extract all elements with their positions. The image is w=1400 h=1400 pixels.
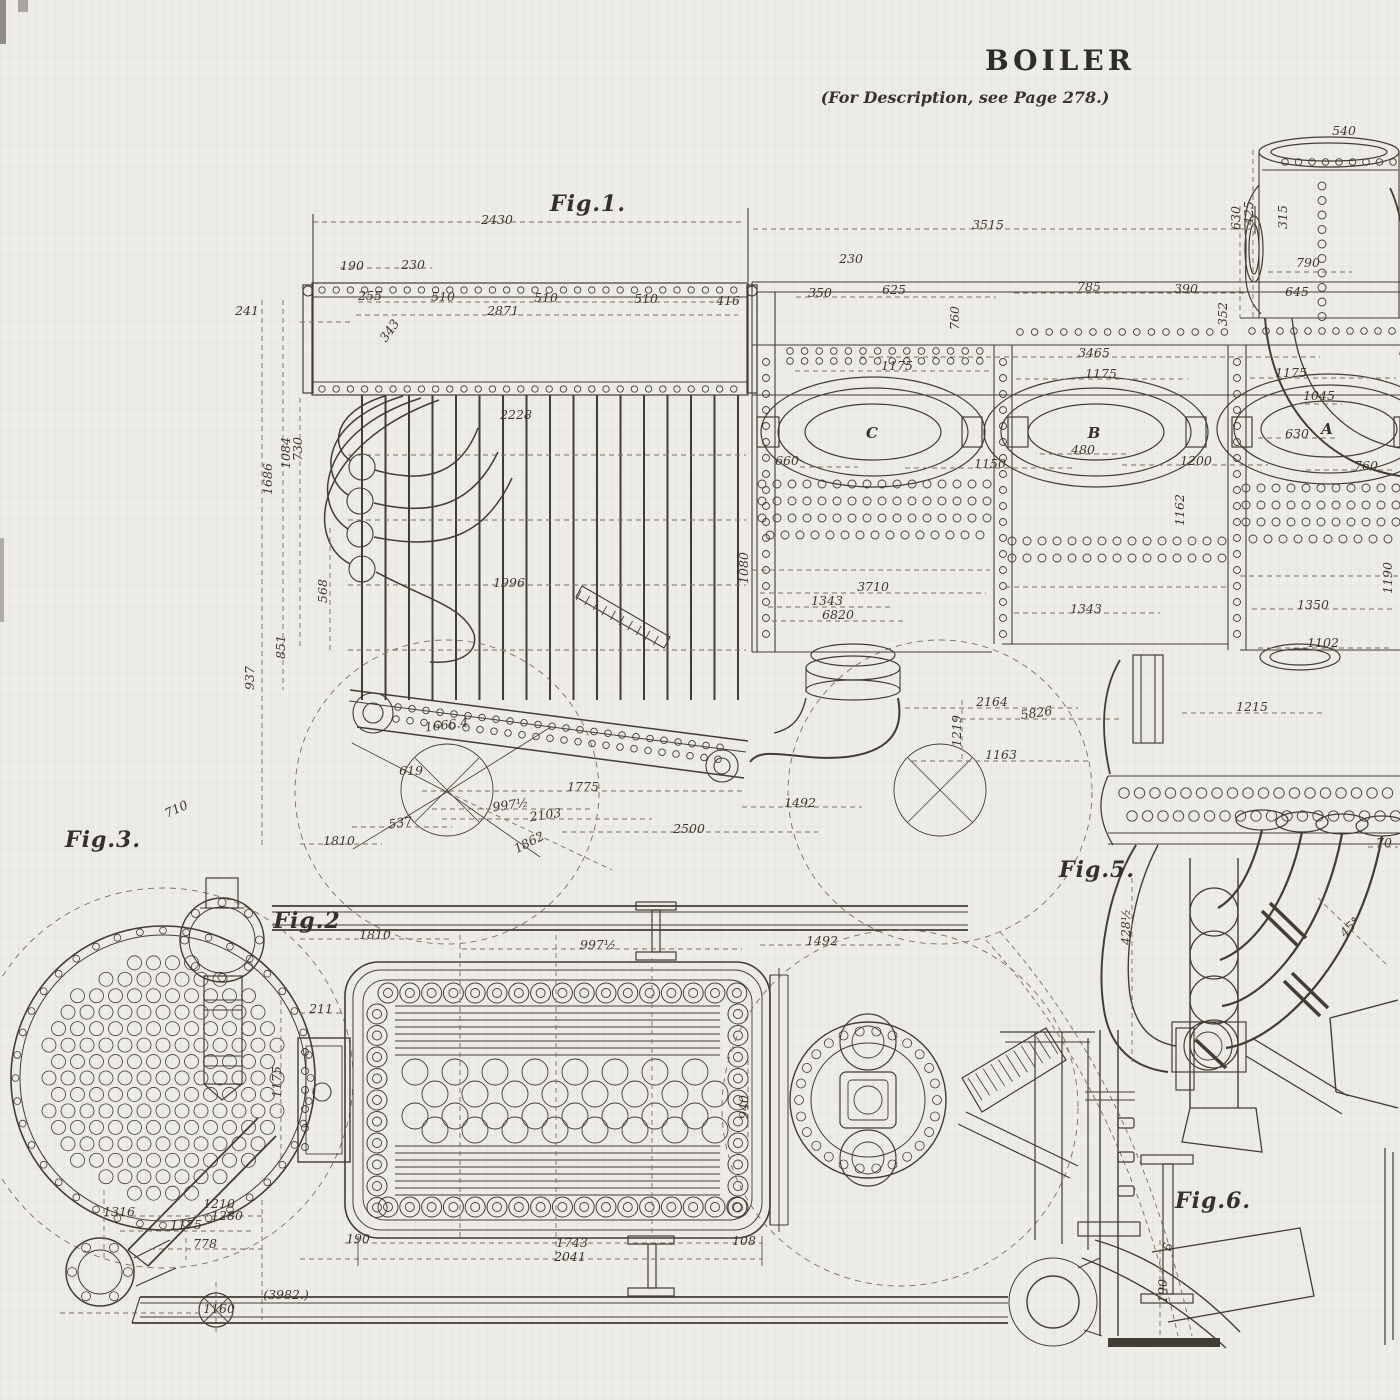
dimension-label: 3465 bbox=[1078, 345, 1110, 360]
dimension-label: 1175 bbox=[881, 358, 913, 373]
dimension-label: 1200 bbox=[1180, 453, 1212, 468]
dimension-label: 480 bbox=[1070, 442, 1095, 457]
dimension-label: 937 bbox=[242, 666, 257, 690]
dimension-label: 625 bbox=[882, 282, 906, 297]
dimension-label: 1350 bbox=[1297, 597, 1329, 612]
dimension-label: 2041 bbox=[553, 1249, 586, 1264]
dimension-label: 416 bbox=[715, 293, 740, 308]
dimension-label: 2103 bbox=[528, 805, 563, 824]
dimension-label: 343 bbox=[376, 316, 402, 344]
dimension-label: 660 bbox=[775, 453, 799, 468]
part-label: C bbox=[866, 424, 878, 442]
fig5-linework bbox=[1102, 810, 1400, 1152]
dimension-label: 1743 bbox=[556, 1235, 588, 1250]
dimension-label: 1102 bbox=[1307, 635, 1339, 650]
dimension-label: 510 bbox=[431, 289, 455, 304]
dimension-label: 255 bbox=[357, 288, 382, 303]
fig2-linework bbox=[132, 902, 1220, 1347]
dimension-label: 2500 bbox=[672, 821, 705, 836]
dimension-label: 190 bbox=[346, 1231, 370, 1246]
figure-label: Fig.1. bbox=[549, 191, 626, 217]
dimension-label: 211 bbox=[308, 1001, 333, 1016]
dimension-label: 778 bbox=[193, 1236, 217, 1251]
dimension-label: 1810 bbox=[359, 927, 391, 942]
dimension-label: 390 bbox=[1174, 281, 1198, 296]
dimension-label: 510 bbox=[534, 290, 558, 305]
dimension-label: 645 bbox=[1285, 284, 1309, 299]
dimension-label: 851 bbox=[273, 635, 288, 659]
drawing-sheet: BOILER (For Description, see Page 278.) … bbox=[0, 0, 1400, 1400]
dimension-label: 568 bbox=[315, 579, 330, 603]
dimension-label: 540 bbox=[1332, 123, 1356, 138]
dimension-label: 619 bbox=[399, 763, 423, 778]
dimension-label: 1175 bbox=[1085, 366, 1117, 381]
dimension-label: 1175 bbox=[269, 1066, 284, 1098]
dimension-label: 1492 bbox=[784, 795, 816, 810]
dimension-label: 537 bbox=[388, 813, 414, 831]
fig6-linework bbox=[958, 932, 1393, 1348]
dimension-label: 1343 bbox=[811, 593, 843, 608]
dimension-label: 997½ bbox=[580, 937, 616, 952]
figure-label: Fig.6. bbox=[1174, 1188, 1251, 1214]
dimension-label: 1686 bbox=[260, 463, 275, 495]
dimension-label: 190 bbox=[340, 258, 364, 273]
dimension-label: 425 bbox=[1241, 201, 1256, 226]
dimension-label: 350 bbox=[808, 285, 832, 300]
dimension-label: 510 bbox=[634, 291, 658, 306]
dimension-label: 730 bbox=[290, 437, 305, 461]
dimension-label: 45° bbox=[1336, 914, 1363, 941]
dimension-labels: 2430351523054019023025551051051041628713… bbox=[103, 123, 1395, 1316]
dimension-label: 1162 bbox=[1172, 494, 1187, 526]
dimension-label: 760 bbox=[947, 306, 962, 330]
figure-label: Fig.5. bbox=[1058, 857, 1135, 883]
fig3-linework bbox=[0, 878, 353, 1334]
dimension-label: 1163 bbox=[985, 747, 1017, 762]
dimension-label: 230 bbox=[838, 251, 863, 266]
dimension-label: 2430 bbox=[480, 212, 513, 227]
dimension-label: 1492 bbox=[806, 933, 838, 948]
paper-artifacts bbox=[0, 0, 28, 622]
dimension-label: 1775 bbox=[567, 779, 599, 794]
dimension-label: 3710 bbox=[857, 579, 889, 594]
dimension-label: 2871 bbox=[486, 303, 519, 318]
boiler-technical-drawing: 2430351523054019023025551051051041628713… bbox=[0, 0, 1400, 1400]
dimension-label: 1175 bbox=[1275, 365, 1307, 380]
dimension-label: 1160 bbox=[203, 1301, 235, 1316]
dimension-label: 1316 bbox=[103, 1204, 135, 1219]
dimension-label: 315 bbox=[1275, 205, 1290, 229]
dimension-label: 241 bbox=[234, 303, 259, 318]
dimension-label: 1080 bbox=[736, 552, 751, 584]
dimension-label: 108 bbox=[732, 1233, 756, 1248]
part-label: A bbox=[1319, 420, 1333, 438]
figure-label: Fig.2 bbox=[272, 908, 340, 934]
dimension-label: 428½ bbox=[1118, 909, 1133, 946]
dimension-label: 1862 bbox=[511, 828, 546, 856]
dimension-label: 710 bbox=[162, 797, 190, 821]
dimension-label: (3982.) bbox=[263, 1287, 309, 1302]
dimension-label: 940 bbox=[736, 1095, 751, 1119]
dimension-label: 1810 bbox=[323, 833, 355, 848]
dimension-label: 5826 bbox=[1020, 703, 1054, 722]
dimension-label: 1190 bbox=[1380, 562, 1395, 594]
dimension-label: 2164 bbox=[975, 694, 1008, 709]
fig1-linework bbox=[262, 137, 1400, 944]
dimension-label: 3515 bbox=[972, 217, 1004, 232]
dimension-label: 1666.4 bbox=[424, 714, 469, 734]
figure-label: Fig.3. bbox=[64, 827, 141, 853]
dimension-label: 1996 bbox=[493, 575, 525, 590]
dimension-label: 785 bbox=[1077, 279, 1101, 294]
dimension-label: 1150 bbox=[974, 456, 1006, 471]
dimension-label: 997½ bbox=[492, 795, 530, 815]
dimension-label: 70 bbox=[1376, 835, 1392, 850]
dimension-label: 1045 bbox=[1303, 388, 1335, 403]
dimension-label: 6820 bbox=[822, 607, 854, 622]
dimension-label: 1219 bbox=[949, 715, 964, 747]
dimension-label: 2228 bbox=[499, 407, 532, 422]
dimension-label: 1175 bbox=[170, 1217, 202, 1232]
dimension-label: 230 bbox=[400, 257, 425, 272]
dimension-label: 352 bbox=[1215, 302, 1230, 326]
dimension-label: 1280 bbox=[211, 1208, 243, 1223]
dimension-label: 1343 bbox=[1070, 601, 1102, 616]
dimension-label: 790 bbox=[1296, 255, 1320, 270]
part-label: B bbox=[1087, 424, 1101, 442]
dimension-label: 190 bbox=[1155, 1279, 1170, 1303]
dimension-label: 760 bbox=[1354, 458, 1378, 473]
dimension-label: 630 bbox=[1285, 426, 1309, 441]
dimension-label: 1215 bbox=[1236, 699, 1268, 714]
